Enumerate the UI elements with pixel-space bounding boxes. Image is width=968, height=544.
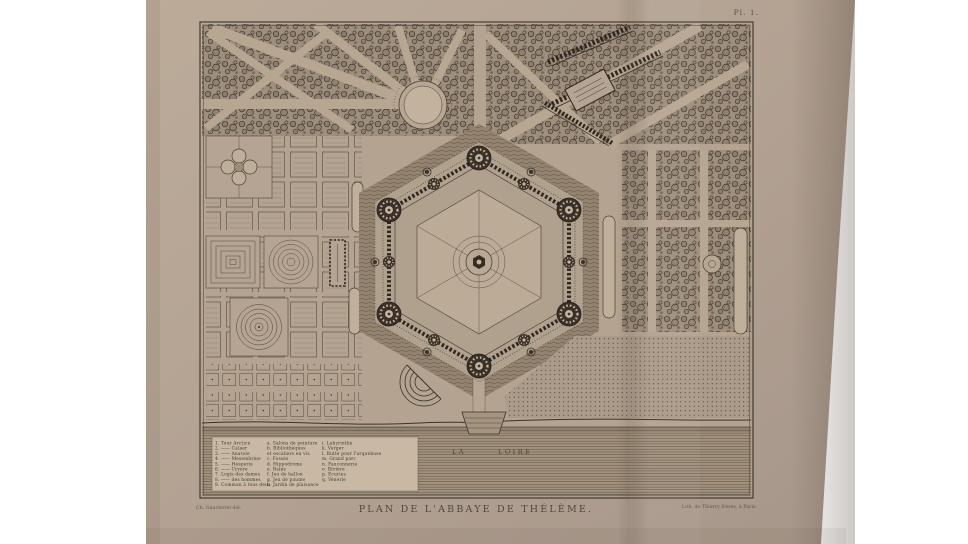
corner-tower-anatole (557, 302, 581, 326)
scanned-page-photo: Pl. 1. (0, 0, 968, 544)
river-label-loire: LOIRE (498, 448, 532, 456)
long-alley (734, 228, 747, 334)
long-pool (349, 288, 360, 334)
artist-credit: Ch. Gaucherel del. (196, 505, 242, 511)
page-edge-shadow (790, 0, 855, 544)
bosquet-top-left (202, 24, 474, 136)
legend-entry: h. Jardin de plaisance (267, 483, 319, 488)
stair-turret (563, 256, 575, 268)
garden-building (330, 240, 345, 286)
orchard-rows (206, 364, 362, 388)
stair-turret (518, 334, 530, 346)
legend-entry: p. Écuries (322, 472, 346, 478)
plate-title: PLAN DE L'ABBAYE DE THÉLÈME. (359, 503, 594, 515)
engraving-plate: Pl. 1. (0, 0, 968, 544)
concentric-parterre (230, 298, 288, 356)
legend-entry: q. Vénerie (322, 478, 346, 483)
legend-box: 1. Tour Arctice 2. —— Calaer 3. —— Anato… (212, 437, 418, 491)
corner-tower-arctice (467, 146, 491, 170)
plate-number: Pl. 1. (734, 8, 759, 17)
corner-tower-calaer (557, 198, 581, 222)
parterre-gardens (206, 136, 363, 420)
legend-entry: 9. Commun à tous deux (215, 483, 271, 488)
stair-turret (428, 178, 440, 190)
long-pool (603, 216, 615, 318)
stair-turret (383, 256, 395, 268)
basin (703, 255, 721, 273)
corner-tower-mesembrine (467, 354, 491, 378)
circular-labyrinth (264, 236, 318, 288)
quatrefoil-parterre (206, 136, 272, 198)
square-labyrinth (206, 236, 260, 288)
corner-tower-hesperie (377, 302, 401, 326)
river-label-la: LA (452, 448, 466, 456)
corner-tower-cryere (377, 198, 401, 222)
stair-turret (428, 334, 440, 346)
orchard-rows (206, 392, 362, 420)
stair-turret (518, 178, 530, 190)
